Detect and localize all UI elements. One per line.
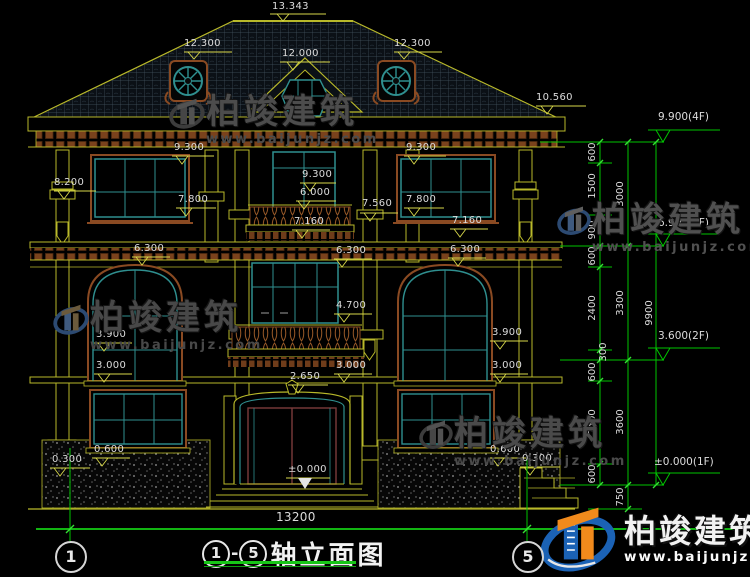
elev-label-2f-sill-right: 3.000 xyxy=(492,361,522,371)
elev-label-balcony-floor-left: 7.160 xyxy=(294,217,324,227)
elev-label-roof-right: 12.300 xyxy=(394,39,431,49)
dim-chain-300: 300 xyxy=(599,342,609,361)
window-3f-left xyxy=(87,155,193,223)
elev-label-3f-win-left-top: 9.300 xyxy=(174,143,204,153)
elev-label-2f-transom-left: 3.900 xyxy=(96,330,126,340)
elev-label-2f-sill-left: 3.000 xyxy=(96,361,126,371)
dim-chain-600d: 600 xyxy=(588,464,598,483)
dim-chain-750: 750 xyxy=(616,487,626,506)
elev-label-1f-sill-left: 0.600 xyxy=(94,445,124,455)
window-3f-right xyxy=(393,155,499,223)
elev-label-roof-left: 12.300 xyxy=(184,39,221,49)
right-level-symbols xyxy=(648,130,720,485)
elev-label-band-left: 6.300 xyxy=(134,244,164,254)
level-label-4f: 9.900(4F) xyxy=(658,112,709,123)
elev-label-entry-floor: ±0.000 xyxy=(288,465,327,475)
elev-label-band-center: 6.300 xyxy=(336,246,366,256)
width-dimension: 13200 xyxy=(276,512,316,522)
elev-label-band-right: 6.300 xyxy=(450,245,480,255)
building-elevation-linework xyxy=(0,0,750,577)
elev-label-dormer: 12.000 xyxy=(282,49,319,59)
elev-label-1f-sill-right: 0.600 xyxy=(490,445,520,455)
elev-label-3f-win-right-sill: 7.800 xyxy=(406,195,436,205)
elev-label-arch-peak: 2.650 xyxy=(290,372,320,382)
balcony-door-3f xyxy=(273,152,335,208)
dim-chain-600b: 600 xyxy=(588,246,598,265)
dim-floor-3300: 3300 xyxy=(616,290,626,315)
dim-floor-3600: 3600 xyxy=(616,409,626,434)
dim-total-9900: 9900 xyxy=(645,300,655,325)
elev-label-3f-center-rail: 6.000 xyxy=(300,188,330,198)
elev-label-eave: 10.560 xyxy=(536,93,573,103)
brand-logo: 柏竣建筑 www.baijunjz.com xyxy=(538,506,750,572)
brand-logo-icon xyxy=(538,506,618,572)
elev-label-balcony2-floor: 3.000 xyxy=(336,361,366,371)
elev-label-2f-transom-right: 3.900 xyxy=(492,328,522,338)
window-1f-right xyxy=(394,390,498,453)
round-vent-left-icon xyxy=(165,61,210,104)
dim-chain-900: 900 xyxy=(588,220,598,239)
cad-elevation-drawing: 13.343 12.300 12.000 12.300 10.560 9.300… xyxy=(0,0,750,577)
elev-label-pilaster-cap: 8.200 xyxy=(54,178,84,188)
elev-label-bay-sill: 4.700 xyxy=(336,301,366,311)
elev-label-plinth-right: 0.300 xyxy=(522,454,552,464)
elev-label-3f-win-right-top: 9.300 xyxy=(406,143,436,153)
round-vent-right-icon xyxy=(373,61,418,104)
title-underline-2 xyxy=(204,566,356,567)
elev-label-plinth-left: 0.300 xyxy=(52,455,82,465)
dim-floor-3000: 3000 xyxy=(616,181,626,206)
elev-label-bay-cornice: 7.560 xyxy=(362,199,392,209)
elev-label-3f-win-left-sill: 7.800 xyxy=(178,195,208,205)
level-label-1f: ±0.000(1F) xyxy=(654,457,714,468)
arched-window-2f-right xyxy=(394,265,496,386)
elev-label-roof-ridge: 13.343 xyxy=(272,2,309,12)
dim-chain-2400b: 2400 xyxy=(588,409,598,434)
dim-chain-1500: 1500 xyxy=(588,173,598,198)
dim-chain-2400a: 2400 xyxy=(588,295,598,320)
elev-label-balcony-floor-right: 7.160 xyxy=(452,216,482,226)
eave-cornice xyxy=(28,117,565,147)
axis-bubble-1: 1 xyxy=(55,541,87,573)
elev-label-3f-center-top: 9.300 xyxy=(302,170,332,180)
axis-bubble-5: 5 xyxy=(512,541,544,573)
level-label-3f: 6.900(3F) xyxy=(658,218,709,229)
level-label-2f: 3.600(2F) xyxy=(658,331,709,342)
brand-url: www.baijunjz.com xyxy=(624,549,750,565)
dim-chain-600a: 600 xyxy=(588,142,598,161)
dim-chain-600c: 600 xyxy=(588,362,598,381)
bay-window-2f xyxy=(252,263,338,323)
title-underline xyxy=(204,561,356,564)
brand-name: 柏竣建筑 xyxy=(624,514,750,548)
entrance-steps xyxy=(206,489,378,507)
